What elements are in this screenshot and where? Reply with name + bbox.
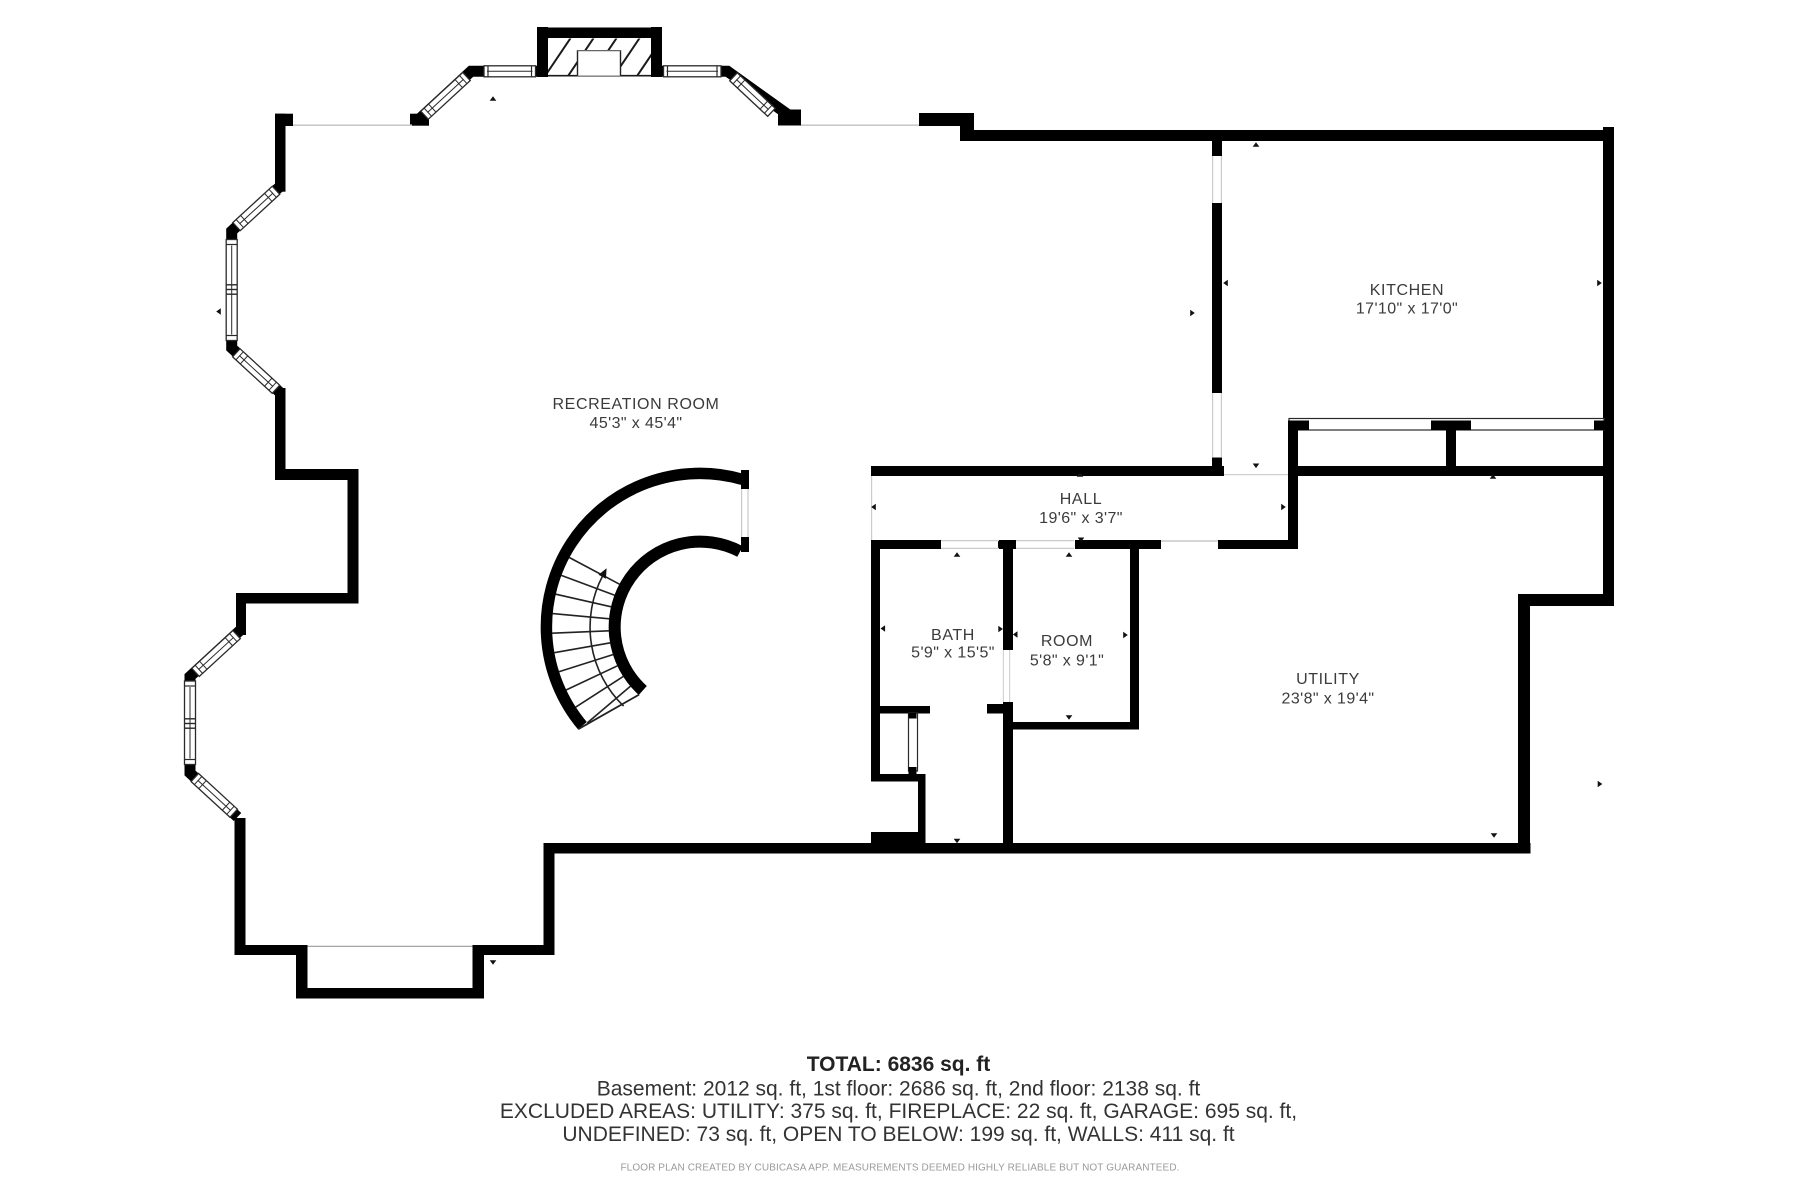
svg-text:45'3" x 45'4": 45'3" x 45'4" xyxy=(590,415,683,432)
svg-text:RECREATION ROOM: RECREATION ROOM xyxy=(553,396,720,413)
svg-text:5'9" x 15'5": 5'9" x 15'5" xyxy=(911,645,995,662)
svg-text:23'8" x 19'4": 23'8" x 19'4" xyxy=(1282,691,1375,708)
svg-text:BATH: BATH xyxy=(931,627,975,644)
svg-text:UNDEFINED: 73 sq. ft, OPEN TO: UNDEFINED: 73 sq. ft, OPEN TO BELOW: 199… xyxy=(562,1123,1234,1146)
svg-text:Basement: 2012 sq. ft, 1st flo: Basement: 2012 sq. ft, 1st floor: 2686 s… xyxy=(597,1078,1201,1101)
svg-text:EXCLUDED AREAS: UTILITY: 375 s: EXCLUDED AREAS: UTILITY: 375 sq. ft, FIR… xyxy=(500,1100,1297,1123)
svg-text:19'6" x 3'7": 19'6" x 3'7" xyxy=(1039,510,1123,527)
svg-text:TOTAL: 6836 sq. ft: TOTAL: 6836 sq. ft xyxy=(807,1053,991,1076)
svg-text:HALL: HALL xyxy=(1060,491,1102,508)
svg-text:FLOOR PLAN CREATED BY CUBICASA: FLOOR PLAN CREATED BY CUBICASA APP. MEAS… xyxy=(620,1163,1179,1174)
svg-text:UTILITY: UTILITY xyxy=(1296,671,1360,688)
svg-text:17'10" x 17'0": 17'10" x 17'0" xyxy=(1356,301,1458,318)
svg-text:KITCHEN: KITCHEN xyxy=(1370,282,1444,299)
svg-text:5'8" x 9'1": 5'8" x 9'1" xyxy=(1030,653,1104,670)
svg-text:ROOM: ROOM xyxy=(1041,633,1093,650)
